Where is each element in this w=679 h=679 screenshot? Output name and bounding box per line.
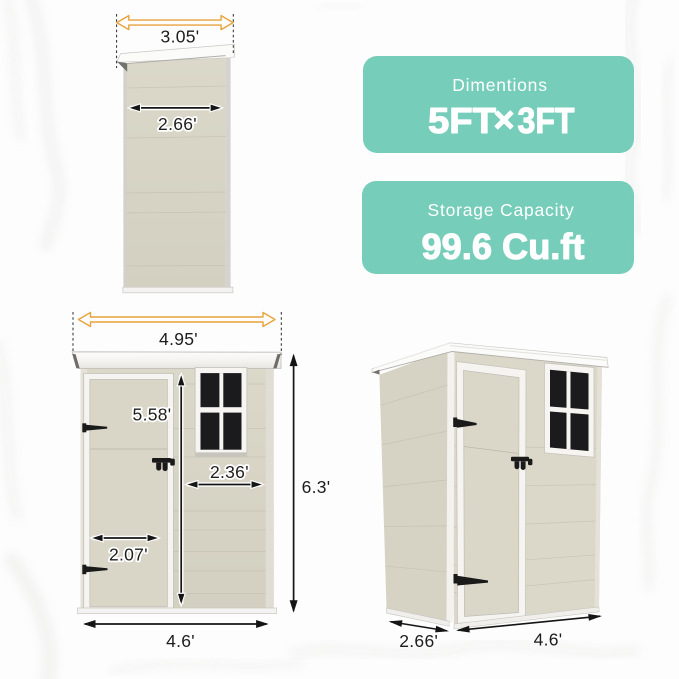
svg-text:2.66': 2.66' xyxy=(399,631,438,651)
svg-text:4.6': 4.6' xyxy=(166,631,195,651)
svg-text:Dimentions: Dimentions xyxy=(452,75,548,95)
svg-text:2.07': 2.07' xyxy=(109,545,148,565)
svg-text:×: × xyxy=(493,99,514,140)
svg-text:2.36': 2.36' xyxy=(210,462,249,482)
svg-text:6.3': 6.3' xyxy=(302,477,331,497)
svg-text:3.05': 3.05' xyxy=(161,27,200,47)
svg-text:5.58': 5.58' xyxy=(133,405,172,425)
svg-text:99.6 Cu.ft: 99.6 Cu.ft xyxy=(422,226,585,267)
svg-text:Storage Capacity: Storage Capacity xyxy=(427,200,574,220)
svg-text:3FT: 3FT xyxy=(518,100,575,141)
svg-text:4.95': 4.95' xyxy=(159,329,198,349)
svg-text:4.6': 4.6' xyxy=(534,630,563,650)
svg-text:2.66': 2.66' xyxy=(158,114,197,134)
svg-text:5FT: 5FT xyxy=(428,100,496,141)
